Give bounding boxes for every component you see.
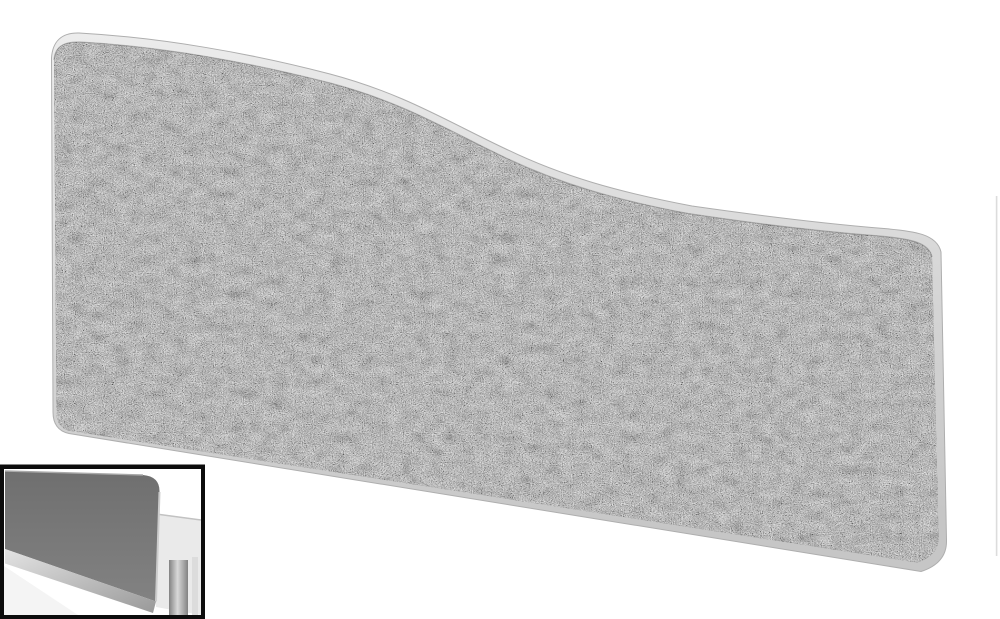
thumbnail-scene [4,469,201,615]
adjacent-image-edge [996,196,998,556]
product-photo [0,0,1000,619]
desk-thumbnail[interactable] [3,467,203,617]
desk-edge-strip [192,557,198,615]
desk-leg [169,560,188,615]
product-photo-canvas [0,0,1000,619]
